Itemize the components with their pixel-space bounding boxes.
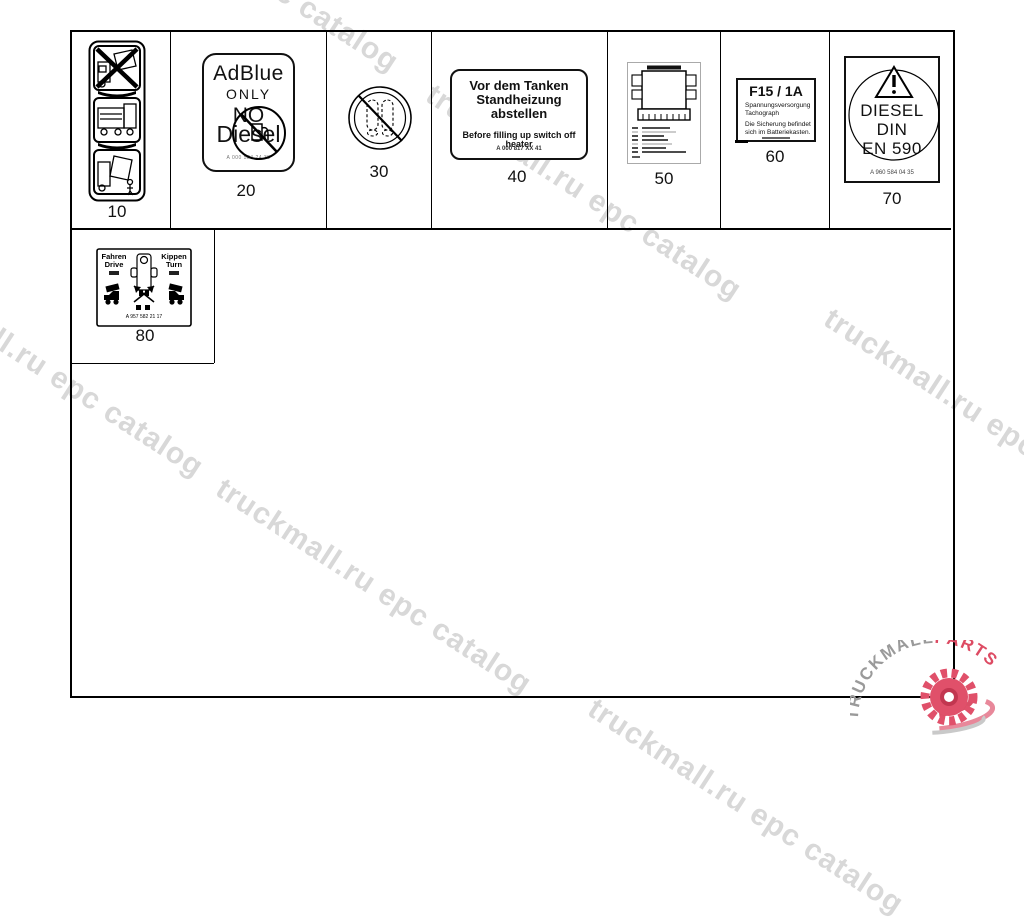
- logo-suffix-text: PARTS: [934, 640, 1002, 670]
- cell-divider: [72, 363, 214, 364]
- tipper-right-en: Turn: [166, 260, 183, 269]
- heater-warning-label: Vor dem Tanken Standheizung abstellen Be…: [450, 69, 588, 160]
- heater-label-part-number: A 000 817 XX 41: [452, 146, 586, 152]
- catalog-page: { "watermark": { "text": "truckmall.ru e…: [0, 0, 1024, 750]
- item-ref-30: 30: [359, 162, 399, 182]
- truckmall-parts-logo: TRUCKMALLPARTS: [850, 640, 1024, 750]
- tipper-control-label: Fahren Drive Kippen Turn A 957 582 21 1: [96, 248, 192, 327]
- heater-label-de1: Vor dem Tanken: [452, 79, 586, 92]
- fuse-part-number-smudge: [762, 137, 790, 139]
- fuse-note1: Die Sicherung befindet: [745, 121, 812, 128]
- control-unit-diagram-label: [627, 62, 701, 164]
- no-diesel-pump-icon: [230, 104, 288, 162]
- item-ref-50: 50: [644, 169, 684, 189]
- adblue-line2: ONLY: [204, 87, 293, 101]
- catalog-item-20[interactable]: AdBlue ONLY NO Diesel A 000 584 24 38 20: [170, 30, 326, 228]
- catalog-item-40[interactable]: Vor dem Tanken Standheizung abstellen Be…: [431, 30, 607, 228]
- item-ref-40: 40: [497, 167, 537, 187]
- logo-gear-swirl: [896, 673, 995, 736]
- tipper-part-number: A 957 582 21 17: [126, 314, 163, 320]
- fuse-sub2: Tachograph: [745, 110, 812, 117]
- fuse-note2: sich im Batteriekasten.: [745, 129, 812, 136]
- tipper-left-en: Drive: [105, 260, 124, 269]
- item-ref-70: 70: [872, 189, 912, 209]
- fuse-label-tick: [735, 140, 748, 143]
- logo-brand-text: TRUCKMALL: [850, 640, 935, 720]
- warning-triangle-icon: [846, 58, 942, 185]
- cell-divider: [214, 230, 215, 363]
- catalog-item-80[interactable]: Fahren Drive Kippen Turn A 957 582 21 1: [70, 228, 214, 363]
- no-step-prohibition-icon: [344, 82, 416, 154]
- item-ref-60: 60: [755, 147, 795, 167]
- catalog-item-50[interactable]: 50: [607, 30, 720, 228]
- heater-label-de3: abstellen: [452, 107, 586, 120]
- catalog-item-30[interactable]: 30: [326, 30, 431, 228]
- fuse-id: F15 / 1A: [738, 84, 814, 98]
- item-ref-10: 10: [97, 202, 137, 222]
- item-ref-20: 20: [226, 181, 266, 201]
- cab-tilt-warning-label: [88, 40, 146, 202]
- catalog-item-70[interactable]: DIESEL DIN EN 590 A 960 584 04 35 70: [829, 30, 955, 228]
- adblue-label: AdBlue ONLY NO Diesel A 000 584 24 38: [202, 53, 295, 172]
- diesel-label: DIESEL DIN EN 590 A 960 584 04 35: [844, 56, 940, 183]
- adblue-line1: AdBlue: [204, 63, 293, 84]
- fuse-info-label: F15 / 1A Spannungsversorgung Tachograph …: [736, 78, 816, 142]
- catalog-item-60[interactable]: F15 / 1A Spannungsversorgung Tachograph …: [720, 30, 829, 228]
- heater-label-de2: Standheizung: [452, 93, 586, 106]
- catalog-item-10[interactable]: 10: [70, 30, 170, 228]
- fuse-sub1: Spannungsversorgung: [745, 102, 812, 109]
- item-ref-80: 80: [125, 326, 165, 346]
